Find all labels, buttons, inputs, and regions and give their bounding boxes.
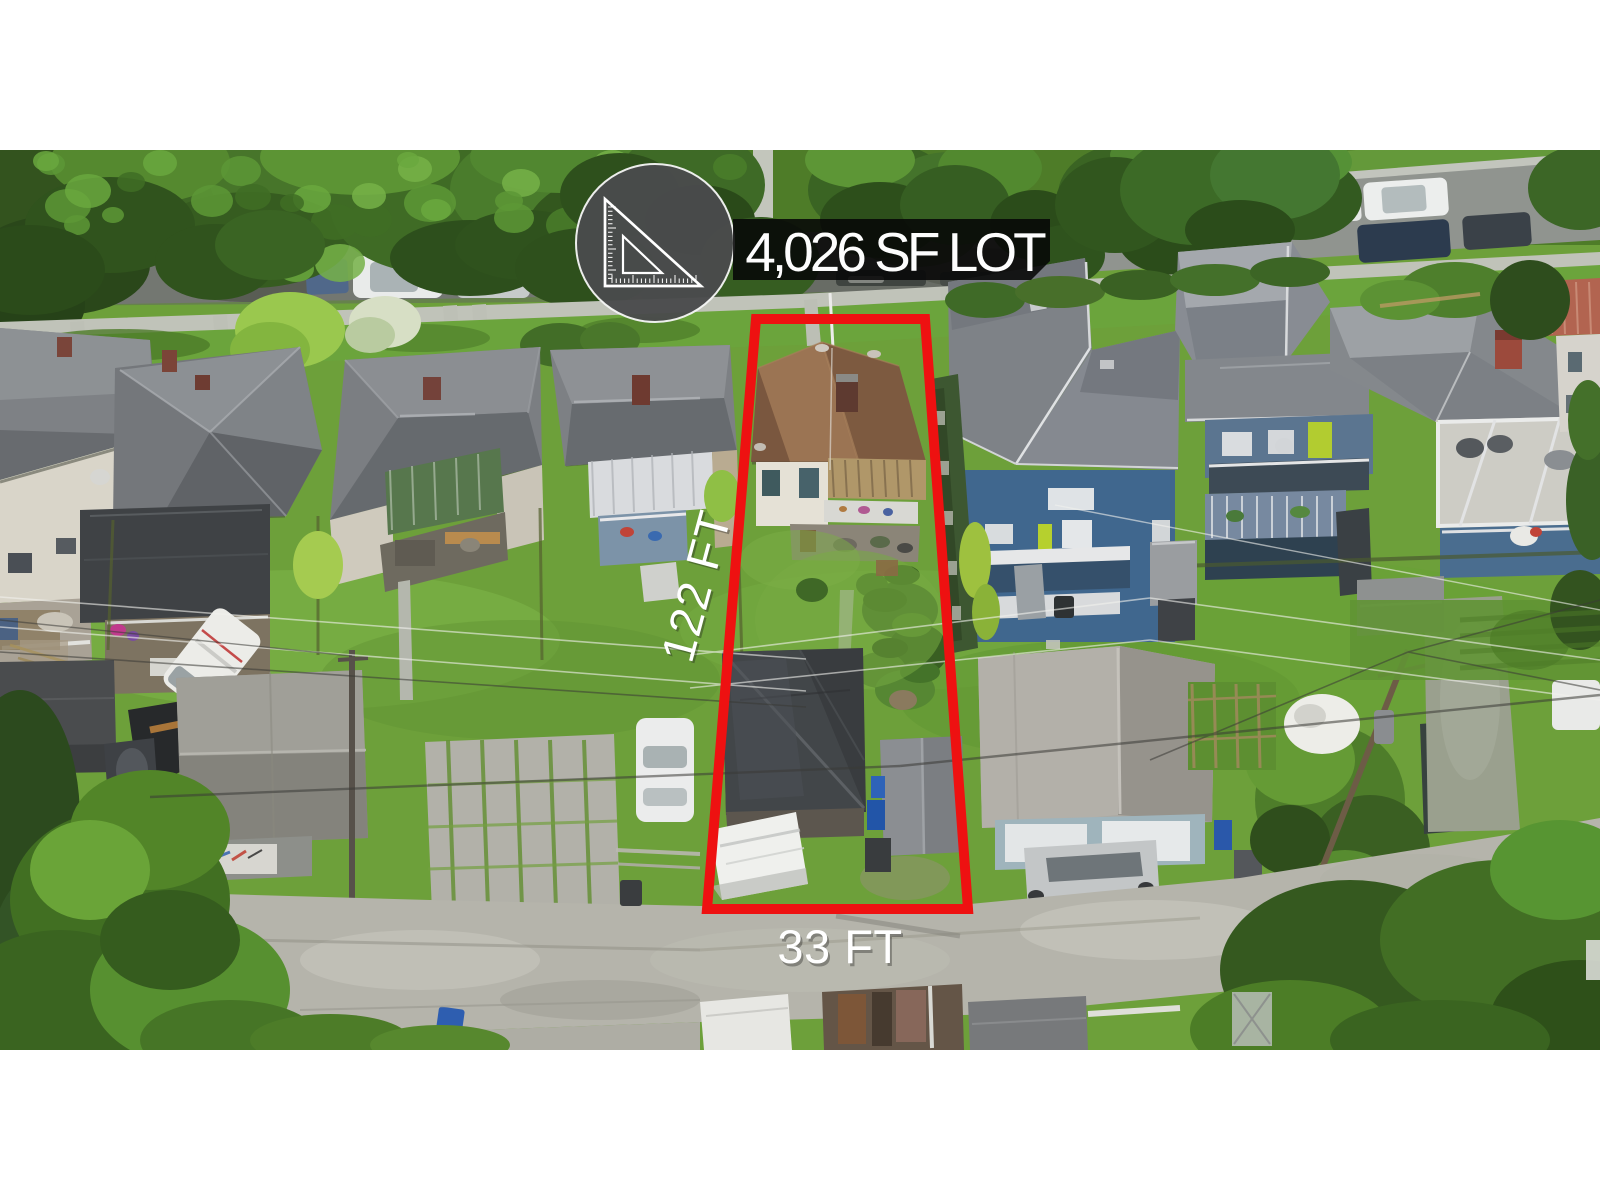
- svg-text:4,026 SF LOT: 4,026 SF LOT: [745, 221, 1046, 283]
- svg-text:33 FT: 33 FT: [777, 920, 902, 973]
